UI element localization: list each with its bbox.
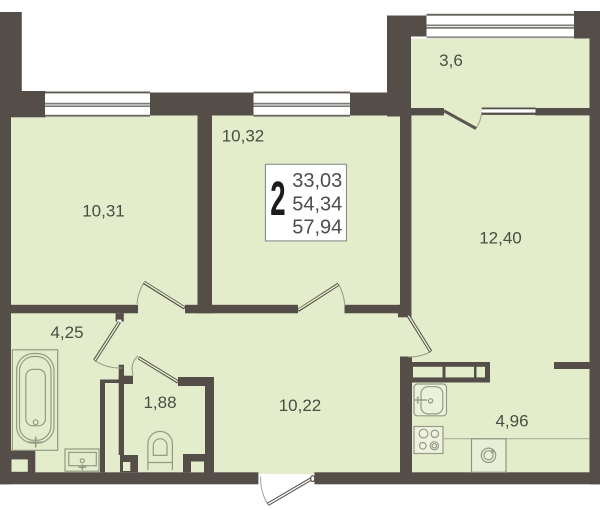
svg-text:10,22: 10,22 xyxy=(279,396,322,415)
svg-text:57,94: 57,94 xyxy=(292,217,342,239)
svg-text:54,34: 54,34 xyxy=(292,193,342,215)
svg-text:10,32: 10,32 xyxy=(222,126,265,145)
svg-text:1,88: 1,88 xyxy=(143,393,176,412)
svg-text:3,6: 3,6 xyxy=(439,51,463,70)
svg-text:10,31: 10,31 xyxy=(82,201,125,220)
svg-text:12,40: 12,40 xyxy=(479,228,522,247)
svg-text:4,96: 4,96 xyxy=(495,411,528,430)
svg-text:2: 2 xyxy=(270,173,285,226)
svg-text:4,25: 4,25 xyxy=(50,323,83,342)
svg-text:33,03: 33,03 xyxy=(292,170,342,192)
